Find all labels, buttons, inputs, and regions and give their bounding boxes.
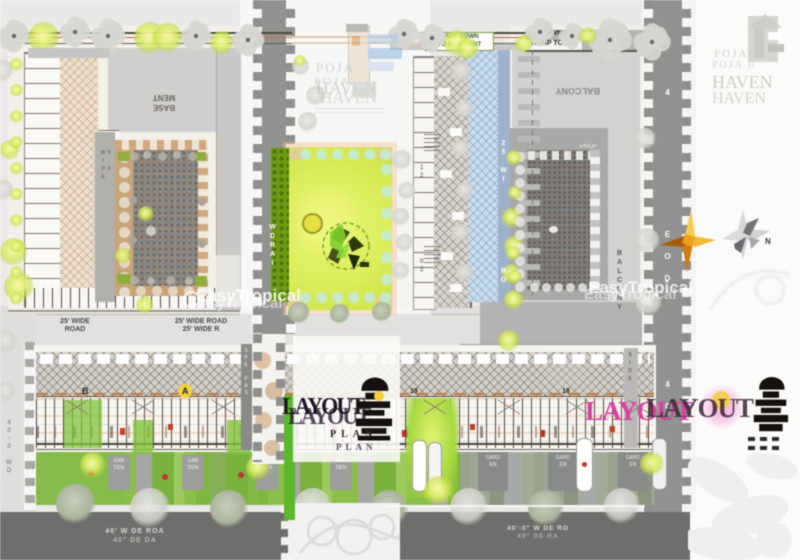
svg-text:N: N (765, 237, 771, 246)
